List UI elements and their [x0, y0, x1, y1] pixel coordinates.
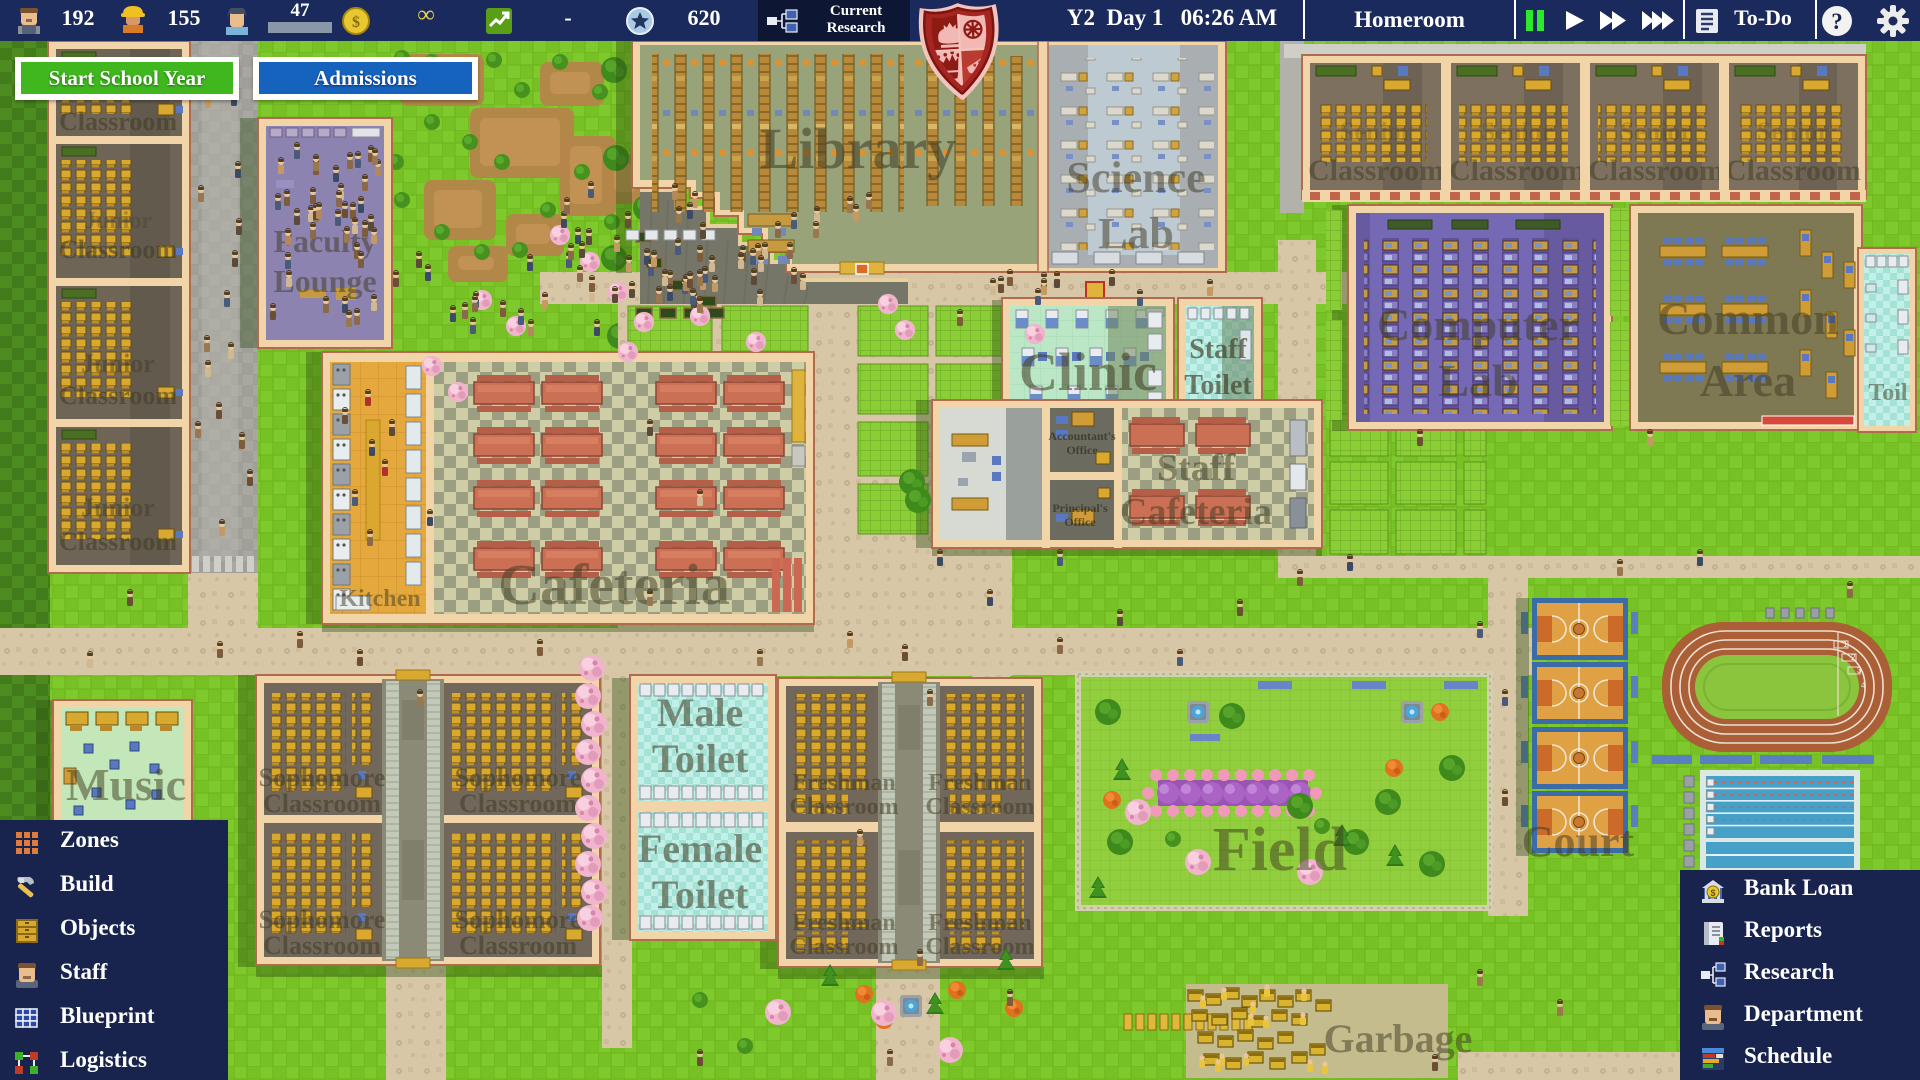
svg-text:Classroom: Classroom — [1449, 154, 1585, 187]
svg-text:Garbage: Garbage — [1324, 1016, 1473, 1061]
svg-text:Classroom: Classroom — [790, 794, 899, 820]
svg-text:Female: Female — [638, 826, 762, 871]
svg-text:Sophomore: Sophomore — [455, 905, 582, 934]
svg-text:Library: Library — [760, 116, 957, 181]
svg-text:2: 2 — [1851, 653, 1856, 662]
svg-text:Area: Area — [1700, 355, 1796, 406]
svg-text:Classroom: Classroom — [263, 789, 381, 818]
svg-text:Cafeteria: Cafeteria — [498, 552, 730, 617]
svg-text:Freshman: Freshman — [928, 910, 1032, 936]
svg-text:Junior: Junior — [84, 208, 152, 234]
svg-text:Classroom: Classroom — [59, 527, 177, 556]
svg-text:$: $ — [352, 14, 360, 31]
svg-text:Field: Field — [1213, 816, 1347, 884]
svg-text:$: $ — [1710, 888, 1715, 898]
svg-text:Classroom: Classroom — [459, 931, 577, 960]
svg-text:Principal's: Principal's — [1052, 501, 1108, 515]
svg-text:Toil: Toil — [1868, 380, 1907, 406]
svg-text:Freshman: Freshman — [792, 910, 896, 936]
svg-text:Junior: Junior — [81, 349, 155, 378]
svg-text:Freshman: Freshman — [928, 770, 1032, 796]
svg-text:Sophomore: Sophomore — [455, 763, 582, 792]
svg-text:Sophomore: Sophomore — [259, 905, 386, 934]
svg-text:Office: Office — [1064, 515, 1096, 529]
svg-text:Senior: Senior — [1340, 117, 1412, 146]
svg-text:Male: Male — [657, 690, 744, 735]
svg-text:Clinic: Clinic — [1019, 342, 1157, 402]
svg-text:Staff: Staff — [1157, 447, 1236, 489]
svg-text:Classroom: Classroom — [59, 235, 177, 264]
svg-text:Senior: Senior — [1620, 117, 1692, 146]
svg-text:Classroom: Classroom — [1308, 154, 1444, 187]
svg-text:Sophomore: Sophomore — [259, 763, 386, 792]
svg-text:Classroom: Classroom — [459, 789, 577, 818]
svg-text:Toilet: Toilet — [1184, 370, 1252, 401]
svg-text:Lab: Lab — [1438, 355, 1517, 406]
svg-text:Classroom: Classroom — [1588, 154, 1724, 187]
svg-text:Toilet: Toilet — [652, 736, 749, 781]
svg-text:Senior: Senior — [1481, 117, 1553, 146]
svg-text:Freshman: Freshman — [792, 770, 896, 796]
svg-text:Science: Science — [1066, 153, 1205, 202]
svg-text:Junior: Junior — [81, 493, 155, 522]
svg-text:3: 3 — [1857, 666, 1862, 675]
svg-text:Classroom: Classroom — [1725, 154, 1861, 187]
svg-text:Classroom: Classroom — [263, 931, 381, 960]
svg-text:Toilet: Toilet — [652, 872, 749, 917]
svg-text:Common: Common — [1657, 293, 1838, 344]
svg-text:Classroom: Classroom — [59, 381, 177, 410]
svg-text:Senior: Senior — [1757, 117, 1829, 146]
svg-text:1: 1 — [1843, 640, 1848, 649]
svg-text:Computer: Computer — [1377, 299, 1579, 350]
svg-text:Cafeteria: Cafeteria — [1120, 491, 1272, 533]
svg-text:Staff: Staff — [1189, 334, 1247, 365]
svg-text:?: ? — [1831, 9, 1843, 34]
svg-text:4: 4 — [1861, 681, 1866, 690]
svg-text:Classroom: Classroom — [926, 934, 1035, 960]
svg-text:Accountant's: Accountant's — [1048, 429, 1116, 443]
svg-text:Kitchen: Kitchen — [339, 586, 420, 612]
svg-text:Office: Office — [1066, 443, 1098, 457]
svg-text:Lab: Lab — [1098, 209, 1174, 258]
svg-text:Classroom: Classroom — [59, 107, 177, 136]
svg-text:Music: Music — [66, 759, 186, 810]
svg-text:Classroom: Classroom — [926, 794, 1035, 820]
svg-text:Classroom: Classroom — [790, 934, 899, 960]
svg-text:Court: Court — [1522, 817, 1635, 866]
